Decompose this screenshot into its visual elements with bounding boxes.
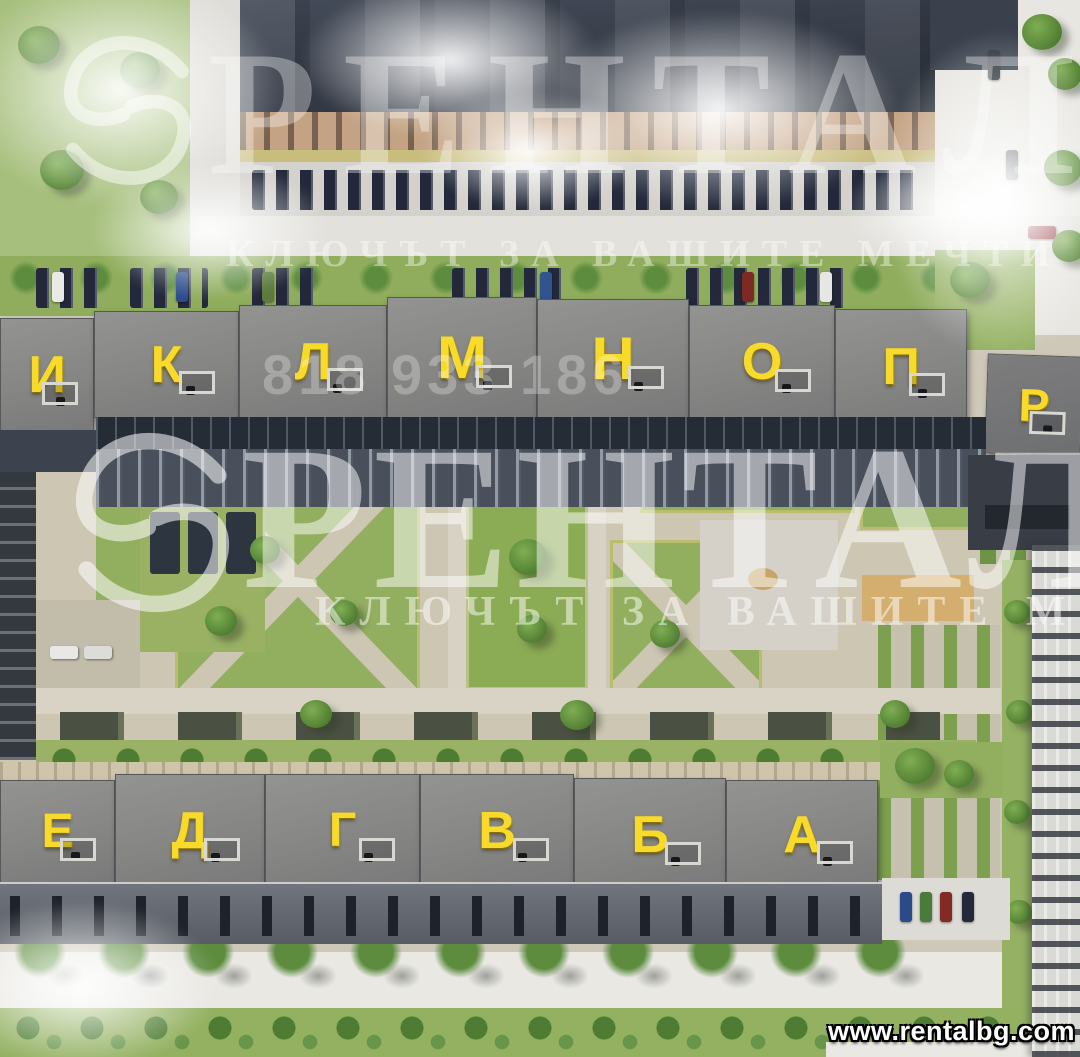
rental-logo-icon <box>35 400 270 645</box>
red-car <box>940 892 952 922</box>
watermark-tagline-top: КЛЮЧЪТ ЗА ВАШИТЕ МЕЧТИ <box>226 232 1062 276</box>
white-car <box>50 646 78 659</box>
building-block-d: Д <box>115 774 265 888</box>
tree <box>895 748 935 784</box>
building-block-b: Б <box>574 778 726 892</box>
building-letter: О <box>742 336 782 388</box>
red-car <box>742 272 754 302</box>
website-watermark: www.rentalbg.com <box>828 1016 1075 1047</box>
building-letter: А <box>783 809 821 861</box>
west-apartment-building <box>0 430 36 760</box>
dark-car <box>962 892 974 922</box>
building-letter: Г <box>329 807 356 855</box>
building-letter: Д <box>171 805 208 857</box>
watermark-brand-top: РЕНТАЛ <box>208 8 1080 218</box>
tree <box>1004 800 1030 824</box>
building-letter: Б <box>631 809 668 861</box>
building-letter: К <box>151 339 183 391</box>
building-block-e: Е <box>0 780 115 884</box>
building-letter: И <box>28 349 65 401</box>
hedge-cars-1 <box>36 268 106 308</box>
green-car <box>920 892 932 922</box>
building-block-v: В <box>420 774 574 888</box>
tree <box>1006 700 1032 724</box>
building-letter: В <box>478 805 516 857</box>
blue-car <box>900 892 912 922</box>
tree <box>944 760 974 788</box>
rental-logo-icon <box>30 8 225 213</box>
white-car <box>820 272 832 302</box>
tree <box>880 700 910 728</box>
pergola-row <box>60 712 940 742</box>
watermark-phone: 818 933 186 <box>262 342 628 407</box>
building-block-g: Г <box>265 774 420 888</box>
walkway <box>36 688 1001 714</box>
white-car <box>84 646 112 659</box>
blue-car <box>540 272 552 302</box>
building-block-a: А <box>726 780 878 890</box>
white-car <box>52 272 64 302</box>
tree <box>300 700 332 728</box>
building-letter: Е <box>41 808 73 856</box>
tree <box>560 700 594 730</box>
building-letter: П <box>882 341 919 393</box>
watermark-tagline-middle: КЛЮЧЪТ ЗА ВАШИТЕ МЕЧТИ <box>315 588 1080 636</box>
site-plan-render: И К Л М Н О П Р Е Д Г В Б А <box>0 0 1080 1057</box>
